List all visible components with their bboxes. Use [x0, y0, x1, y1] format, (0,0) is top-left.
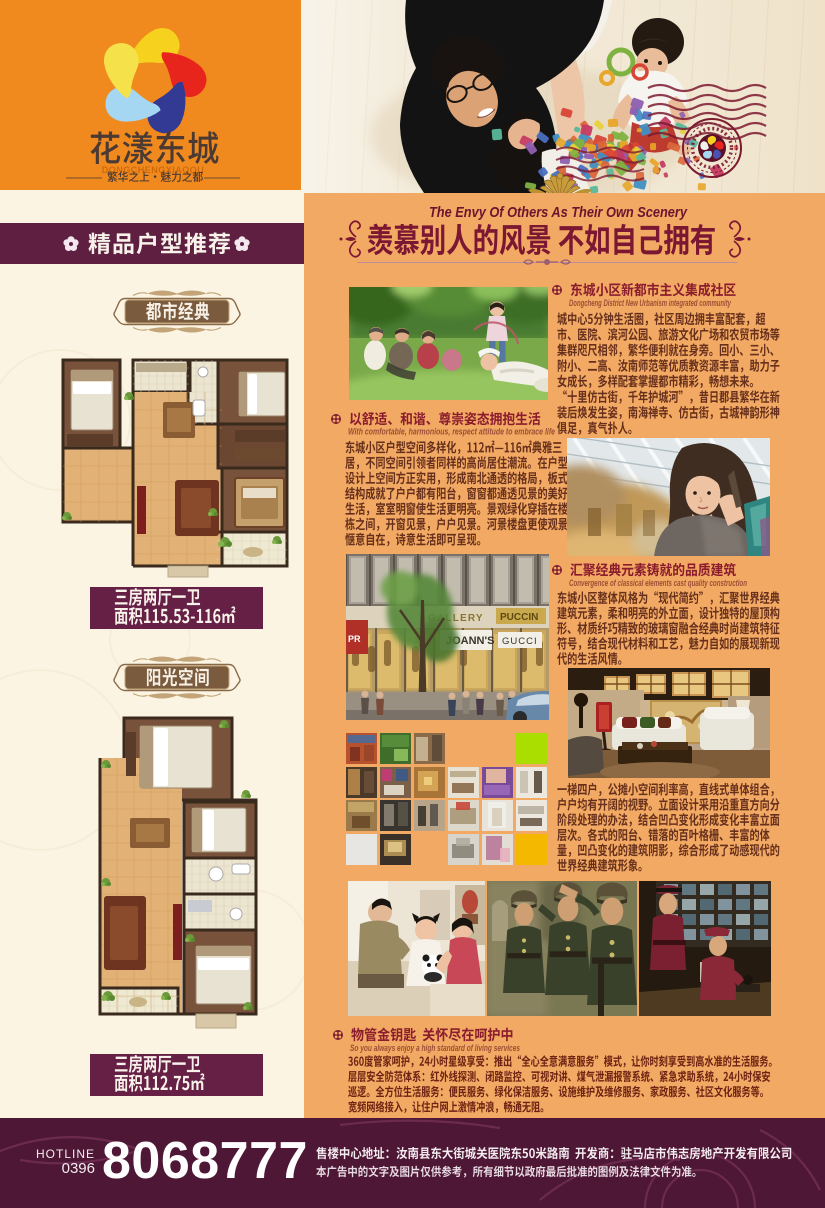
svg-text:Dongcheng District New Urbanis: Dongcheng District New Urbanism integrat… [569, 298, 731, 309]
svg-text:The Envy Of Others As Their Ow: The Envy Of Others As Their Own Scenery [429, 204, 688, 221]
svg-text:0396: 0396 [62, 1160, 95, 1177]
svg-text:8068777: 8068777 [102, 1132, 308, 1190]
svg-text:Convergence of classical eleme: Convergence of classical elements cast q… [569, 578, 747, 589]
svg-text:With comfortable, harmonious,: With comfortable, harmonious, respect at… [348, 427, 556, 438]
svg-text:PUCCIN: PUCCIN [500, 612, 538, 623]
svg-text:DONGCHENGXIAOQU: DONGCHENGXIAOQU [102, 165, 205, 175]
svg-text:So you always enjoy a high sta: So you always enjoy a high standard of l… [350, 1043, 520, 1053]
svg-text:HOTLINE: HOTLINE [36, 1147, 95, 1161]
svg-text:GUCCI: GUCCI [502, 636, 538, 647]
svg-text:PR: PR [348, 634, 361, 644]
